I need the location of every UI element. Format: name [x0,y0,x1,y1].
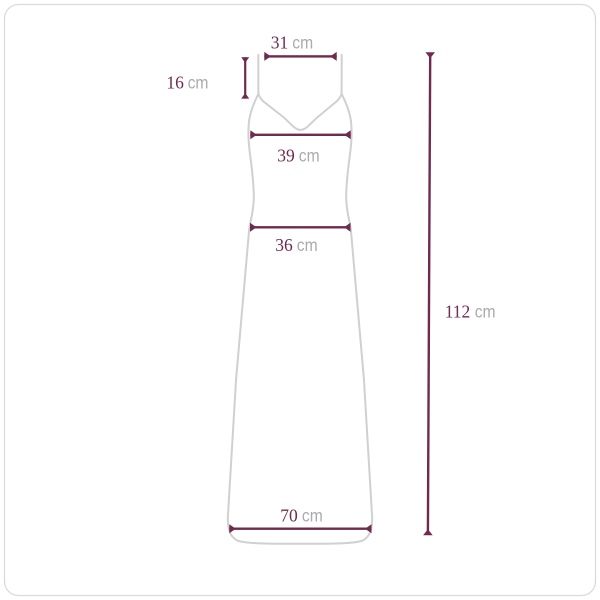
svg-text:cm: cm [297,235,318,255]
svg-text:36: 36 [275,235,293,255]
svg-text:cm: cm [299,145,320,165]
svg-text:112: 112 [445,302,471,322]
svg-text:cm: cm [475,302,496,322]
svg-text:70: 70 [280,506,298,526]
svg-text:cm: cm [302,506,323,526]
svg-text:cm: cm [188,72,209,92]
svg-text:cm: cm [292,32,313,52]
svg-text:31: 31 [271,32,289,52]
svg-text:16: 16 [166,72,184,92]
svg-text:39: 39 [277,145,295,165]
